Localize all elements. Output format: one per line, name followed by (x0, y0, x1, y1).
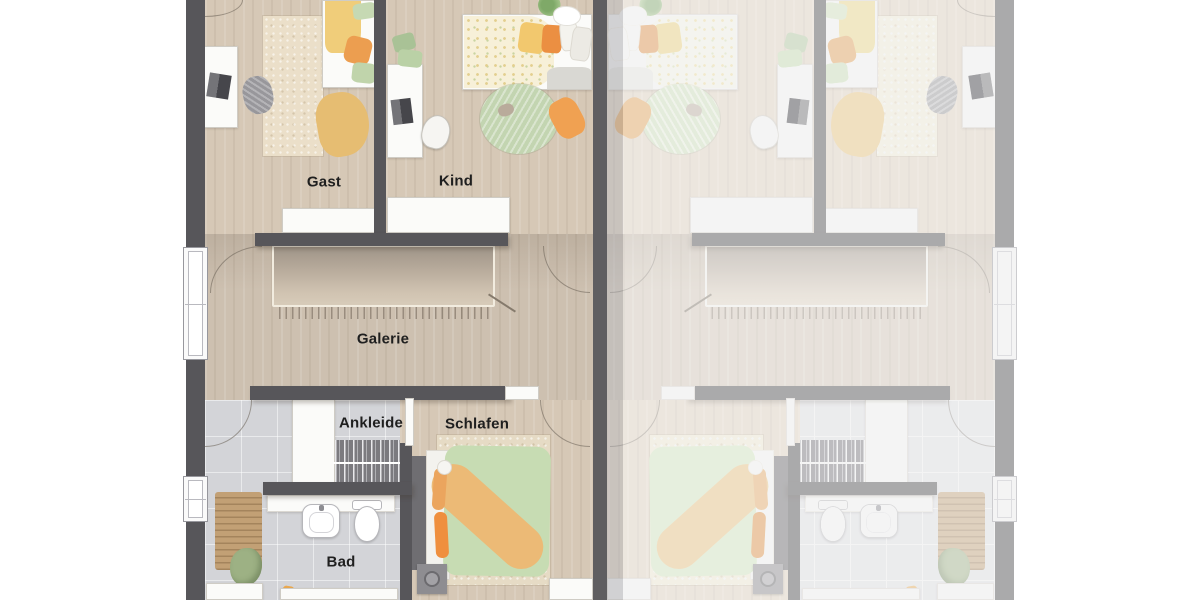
ankleide-schlafen-wall (400, 443, 412, 600)
kind-bed (462, 14, 592, 90)
schlafen-headboard (412, 456, 426, 570)
wardrobe-hangers (335, 440, 400, 482)
gast-kind-wall (374, 0, 386, 234)
window-galerie (992, 247, 1017, 360)
kind-sideboard (387, 197, 510, 233)
schlafen-door-leaf (505, 386, 539, 400)
gast-bed-pillow-green-bottom (823, 62, 849, 84)
schlafen-lamp-ball (437, 460, 452, 475)
toilet-bowl (354, 506, 380, 542)
outer-wall-left-c (995, 522, 1014, 600)
outer-wall-left-c (186, 522, 205, 600)
kind-bed-pillow-white-b (569, 26, 594, 62)
nightstand-knob (424, 571, 440, 587)
wardrobe-rod (333, 462, 402, 464)
stairwell (705, 245, 928, 307)
gast-laptop (968, 72, 993, 99)
window-bad (183, 476, 208, 522)
schlafen-throw-orange-b (434, 512, 449, 559)
bath-washer (937, 583, 994, 600)
kind-laptop (391, 98, 414, 125)
gast-bed (322, 0, 378, 88)
sink-basin (309, 512, 334, 533)
bathtub (280, 588, 398, 600)
room-label-gast: Gast (307, 174, 341, 191)
window-mullion (994, 499, 1015, 500)
schlafen-dresser (607, 578, 651, 600)
ankleide-cabinet (865, 388, 908, 483)
window-mullion (185, 499, 206, 500)
toilet-bowl (820, 506, 846, 542)
bath-washer (206, 583, 263, 600)
window-galerie (183, 247, 208, 360)
outer-wall-left-a (186, 0, 205, 248)
schlafen-dresser (549, 578, 593, 600)
gast-rug (263, 16, 323, 156)
bad-ankleide-wall (263, 482, 412, 495)
kind-pillow-green-b (397, 49, 423, 68)
window-bad (992, 476, 1017, 522)
schlafen-headboard (774, 456, 788, 570)
bath-towel-green (938, 548, 970, 586)
kind-sideboard (690, 197, 813, 233)
ankleide-door-leaf (786, 398, 795, 446)
party-wall (593, 0, 607, 600)
wardrobe-hangers (800, 440, 865, 482)
kind-laptop (787, 98, 810, 125)
stairwell (272, 245, 495, 307)
kind-cloud-shelf (553, 6, 581, 26)
room-label-galerie: Galerie (357, 331, 409, 348)
ankleide-schlafen-wall (788, 443, 800, 600)
room-label-ankleide: Ankleide (339, 415, 403, 432)
outer-wall-left-b (186, 360, 205, 476)
bath-sink (860, 504, 898, 538)
schlafen-nightstand (417, 564, 447, 594)
gast-kind-wall (814, 0, 826, 234)
kind-round-rug (480, 84, 558, 154)
window-mullion (994, 304, 1015, 305)
unit-right (593, 0, 1014, 600)
stair-treads (274, 307, 493, 319)
schlafen-throw-orange-b (751, 512, 766, 559)
gast-bed-pillow-green-top (823, 1, 848, 20)
hall-bottom-wall (690, 386, 950, 400)
room-label-kind: Kind (439, 173, 473, 190)
ankleide-cabinet (292, 388, 335, 483)
schlafen-nightstand (753, 564, 783, 594)
window-mullion (185, 304, 206, 305)
kind-round-rug (642, 84, 720, 154)
unit-left: Gast Kind Galerie Ankleide Schlafen Bad (186, 0, 607, 600)
outer-wall-left-b (995, 360, 1014, 476)
bath-sink (302, 504, 340, 538)
sink-basin (866, 512, 891, 533)
kind-pillow-green-b (777, 49, 803, 68)
kind-cloud-shelf (619, 6, 647, 26)
ankleide-door-leaf (405, 398, 414, 446)
outer-wall-left-a (995, 0, 1014, 248)
bathtub (802, 588, 920, 600)
hall-top-wall (255, 233, 508, 246)
hall-bottom-wall (250, 386, 510, 400)
sink-faucet (876, 505, 881, 511)
gast-laptop (206, 72, 231, 99)
kind-bed-gray-blanket (609, 67, 653, 89)
kind-bed-gray-blanket (547, 67, 591, 89)
schlafen-door-leaf (661, 386, 695, 400)
bad-ankleide-wall (788, 482, 937, 495)
wardrobe-rod (798, 462, 867, 464)
gast-sideboard (823, 208, 918, 233)
sink-faucet (319, 505, 324, 511)
schlafen-lamp-ball (748, 460, 763, 475)
hall-top-wall (692, 233, 945, 246)
gast-bed (822, 0, 878, 88)
gast-sideboard (282, 208, 377, 233)
stair-treads (707, 307, 926, 319)
room-label-schlafen: Schlafen (445, 416, 509, 433)
nightstand-knob (760, 571, 776, 587)
floorplan: Gast Kind Galerie Ankleide Schlafen Bad (0, 0, 1200, 600)
room-label-bad: Bad (327, 554, 356, 571)
